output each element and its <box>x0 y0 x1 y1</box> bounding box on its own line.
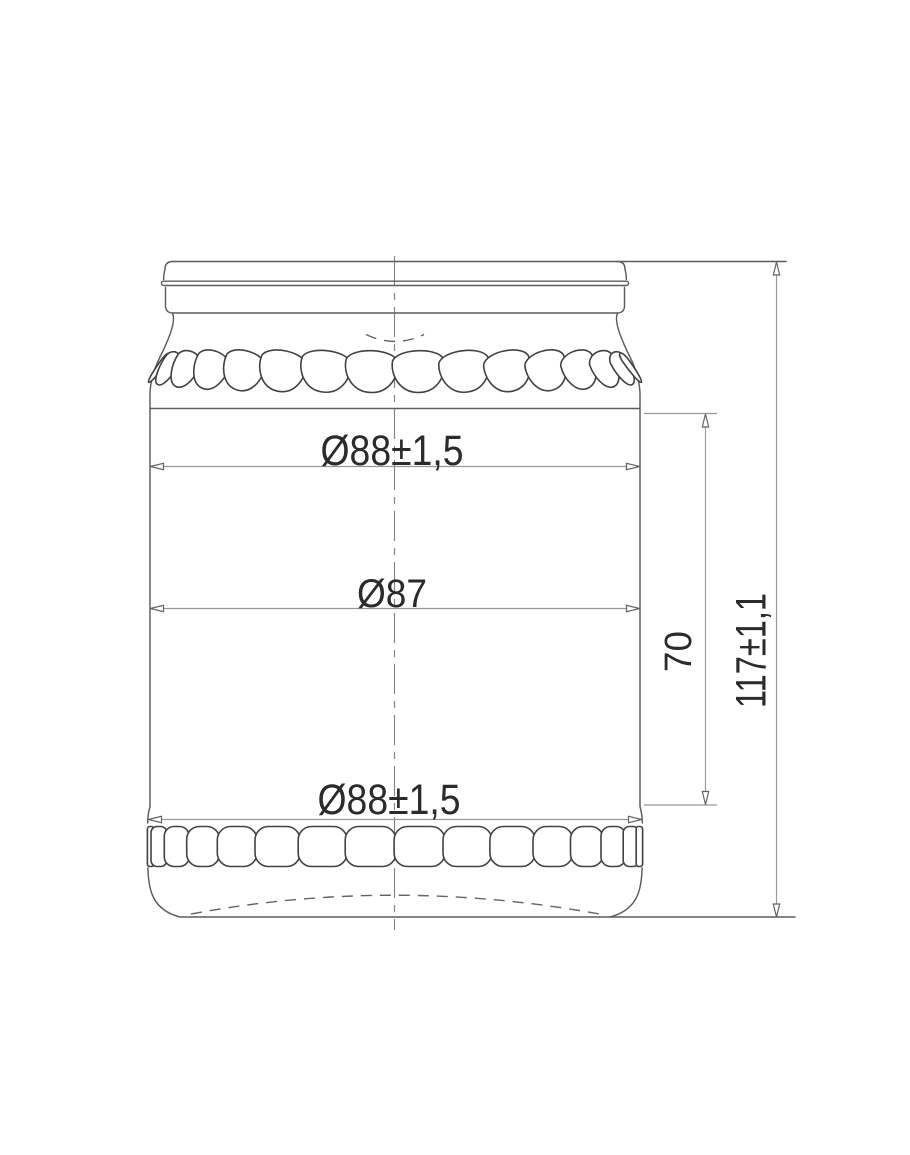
svg-text:Ø88±1,5: Ø88±1,5 <box>318 776 461 824</box>
svg-text:70: 70 <box>658 631 700 672</box>
svg-text:Ø87: Ø87 <box>357 572 427 616</box>
svg-text:Ø88±1,5: Ø88±1,5 <box>321 427 464 475</box>
svg-text:117±1,1: 117±1,1 <box>728 593 776 708</box>
